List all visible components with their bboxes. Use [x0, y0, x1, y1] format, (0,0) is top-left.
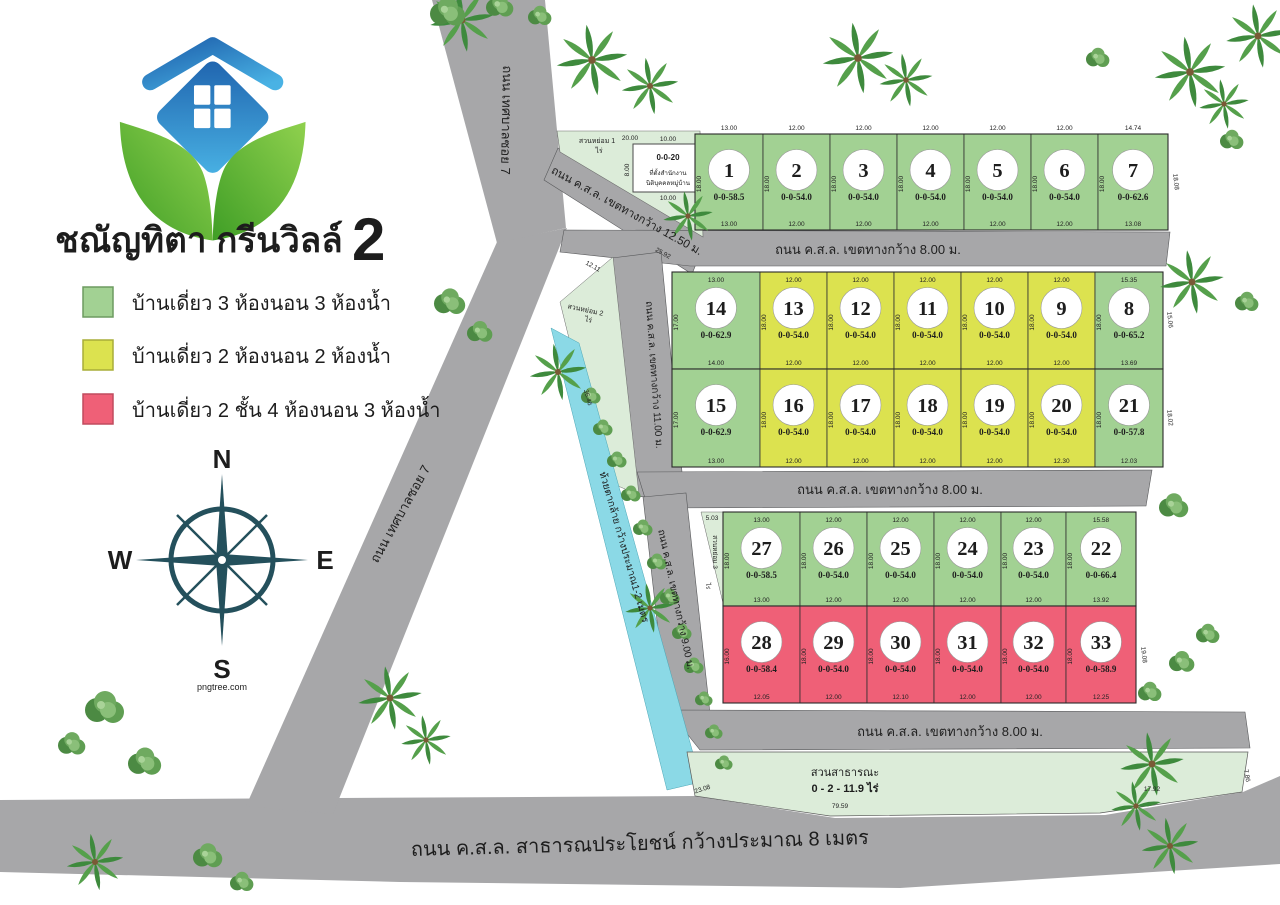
plot-area: 0-0-54.0: [915, 192, 946, 202]
plot-dim-side: 17.00: [673, 314, 680, 331]
plot-dim-bottom: 12.03: [1121, 458, 1138, 465]
plot-dim-bottom: 12.00: [959, 694, 976, 701]
plot-number: 7: [1128, 160, 1138, 182]
plot-area: 0-0-58.4: [746, 664, 777, 674]
plot-5: 50-0-54.012.0012.0018.00: [964, 125, 1031, 230]
plot-23: 230-0-54.012.0012.0018.00: [1001, 512, 1066, 606]
plot-dim-bottom: 13.00: [753, 597, 770, 604]
plot-21: 210-0-57.812.0318.00: [1095, 369, 1163, 467]
plot-8: 80-0-65.215.3513.6918.00: [1095, 272, 1163, 369]
legend-label-green: บ้านเดี่ยว 3 ห้องนอน 3 ห้องน้ำ: [132, 289, 391, 315]
plot-10: 100-0-54.012.0012.0018.00: [961, 272, 1028, 369]
plot-area: 0-0-54.0: [979, 330, 1010, 340]
plot-dim-top: 12.00: [788, 125, 805, 132]
plot-dim-bottom: 12.05: [753, 694, 770, 701]
plot-dim-top: 13.00: [721, 125, 738, 132]
plot-area: 0-0-65.2: [1114, 330, 1145, 340]
plot-number: 27: [751, 538, 772, 560]
plot-area: 0-0-54.0: [818, 664, 849, 674]
plot-dim-bottom: 12.00: [922, 221, 939, 228]
plot-dim-side: 18.00: [764, 175, 771, 192]
road8-label-3: ถนน ค.ส.ล. เขตทางกว้าง 8.00 ม.: [857, 724, 1043, 739]
plot-number: 17: [850, 395, 871, 417]
public-park-line2: 0 - 2 - 11.9 ไร่: [811, 781, 878, 795]
legend-chip-pink: [83, 394, 113, 424]
plot-dim-bottom: 12.00: [852, 458, 869, 465]
plot-number: 4: [925, 160, 935, 182]
plot-28: 280-0-58.412.0516.00: [723, 606, 800, 703]
plot-dim-bottom: 12.00: [785, 360, 802, 367]
plot-dim-top: 12.00: [989, 125, 1006, 132]
plot-number: 3: [858, 160, 868, 182]
plot-dim-side: 18.00: [828, 411, 835, 428]
plot-area: 0-0-54.0: [778, 427, 809, 437]
plot-dim-side: 18.00: [761, 411, 768, 428]
plot-17: 170-0-54.012.0018.00: [827, 369, 894, 467]
plot-dim-top: 13.00: [753, 517, 770, 524]
plot-dim-top: 12.00: [1053, 277, 1070, 284]
plot-number: 11: [918, 298, 937, 320]
plot-dim-bottom: 12.00: [825, 694, 842, 701]
plot-area: 0-0-54.0: [885, 570, 916, 580]
plot-dim-top: 12.00: [1025, 517, 1042, 524]
garden1-rai: ไร่: [594, 146, 603, 155]
office-dim-bottom: 10.00: [660, 195, 677, 202]
plot-dim-bottom: 12.00: [1056, 221, 1073, 228]
plot-number: 15: [706, 395, 727, 417]
plot-20: 200-0-54.012.3018.00: [1028, 369, 1095, 467]
plot-number: 32: [1023, 632, 1044, 654]
plot-dim-bottom: 12.00: [986, 458, 1003, 465]
plot-4: 40-0-54.012.0012.0018.00: [897, 125, 964, 230]
plot-7: 70-0-62.614.7413.0818.00: [1098, 125, 1168, 230]
site-plan-page: 0-0-20 ที่ตั้งสำนักงาน นิติบุคคลหมู่บ้าน…: [0, 0, 1280, 905]
legend-chip-green: [83, 287, 113, 317]
plot-dim-side: 18.00: [831, 175, 838, 192]
plot-dim-bottom: 12.00: [855, 221, 872, 228]
plot-area: 0-0-54.0: [1049, 192, 1080, 202]
plot-dim-side: 18.00: [868, 552, 875, 569]
plot-dim-bottom: 12.00: [785, 458, 802, 465]
plot-number: 5: [992, 160, 1002, 182]
plot-dim-side: 18.00: [965, 175, 972, 192]
plot-dim-bottom: 12.30: [1053, 458, 1070, 465]
plot-area: 0-0-62.9: [701, 427, 732, 437]
plot-dim-bottom: 12.10: [892, 694, 909, 701]
plot-area: 0-0-54.0: [912, 427, 943, 437]
plot-area: 0-0-58.9: [1086, 664, 1117, 674]
plot-number: 10: [984, 298, 1005, 320]
plot-dim-top: 12.00: [922, 125, 939, 132]
dim-park-right: 17.92: [1144, 786, 1161, 793]
plot-area: 0-0-54.0: [845, 427, 876, 437]
plot-number: 20: [1051, 395, 1072, 417]
plot-dim-side: 18.00: [1032, 175, 1039, 192]
top-road-label: ถนน เทศบาลซอย 7: [498, 65, 515, 174]
plot-24: 240-0-54.012.0012.0018.00: [934, 512, 1001, 606]
office-dim-top: 10.00: [660, 136, 677, 143]
plot-dim-bottom: 12.00: [959, 597, 976, 604]
plot-32: 320-0-54.012.0018.00: [1001, 606, 1066, 703]
plot-number: 30: [890, 632, 911, 654]
plot-dim-top: 14.74: [1125, 125, 1142, 132]
plot-area: 0-0-54.0: [912, 330, 943, 340]
plot-area: 0-0-54.0: [982, 192, 1013, 202]
plot-number: 31: [957, 632, 978, 654]
plot-number: 18: [917, 395, 938, 417]
plot-dim-bottom: 12.00: [919, 360, 936, 367]
plot-22: 220-0-66.415.5813.9218.00: [1066, 512, 1136, 606]
plot-dim-side: 18.00: [761, 314, 768, 331]
plot-11: 110-0-54.012.0012.0018.00: [894, 272, 961, 369]
plot-area: 0-0-54.0: [1046, 330, 1077, 340]
garden1-dim: 20.00: [622, 135, 639, 142]
plot-area: 0-0-54.0: [818, 570, 849, 580]
legend-label-pink: บ้านเดี่ยว 2 ชั้น 4 ห้องนอน 3 ห้องน้ำ: [132, 396, 441, 422]
plot-dim-bottom: 12.00: [1053, 360, 1070, 367]
plot-dim-side: 18.00: [895, 314, 902, 331]
plot-dim-side: 18.00: [801, 648, 808, 665]
plot-27: 270-0-58.513.0013.0018.00: [723, 512, 800, 606]
plot-33: 330-0-58.912.2518.00: [1066, 606, 1136, 703]
plot-dim-top: 12.00: [785, 277, 802, 284]
plot-dim-bottom: 13.00: [721, 221, 738, 228]
plot-area: 0-0-54.0: [1046, 427, 1077, 437]
legend: บ้านเดี่ยว 3 ห้องนอน 3 ห้องน้ำ บ้านเดี่ย…: [83, 287, 441, 424]
office-line1: ที่ตั้งสำนักงาน: [649, 168, 687, 177]
plot-area: 0-0-57.8: [1114, 427, 1145, 437]
plot-dim-bottom: 12.00: [825, 597, 842, 604]
plot-dim-side: 18.00: [1096, 411, 1103, 428]
compass-n: N: [213, 444, 232, 474]
plot-dim-top: 12.00: [855, 125, 872, 132]
plot-dim-bottom: 12.00: [788, 221, 805, 228]
plot-area: 0-0-58.5: [714, 192, 745, 202]
plot-25: 250-0-54.012.0012.0018.00: [867, 512, 934, 606]
plot-dim-top: 15.58: [1093, 517, 1110, 524]
plot-dim-bottom: 13.08: [1125, 221, 1142, 228]
plot-dim-top: 12.00: [852, 277, 869, 284]
plot-15: 150-0-62.913.0017.00: [672, 369, 760, 467]
garden3-rai: ไร่: [704, 582, 712, 590]
plot-dim-side: 18.00: [1067, 552, 1074, 569]
plot-dim-bottom: 12.00: [852, 360, 869, 367]
plot-dim-side: 16.00: [724, 648, 731, 665]
plot-dim-side: 18.00: [1029, 314, 1036, 331]
plot-dim-side: 18.00: [935, 552, 942, 569]
plot-area: 0-0-54.0: [885, 664, 916, 674]
plot-number: 25: [890, 538, 911, 560]
plot-dim-side: 18.00: [1002, 648, 1009, 665]
plot-area: 0-0-62.6: [1118, 192, 1149, 202]
plot-number: 33: [1091, 632, 1112, 654]
compass-w: W: [108, 545, 133, 575]
garden3-label: สวนหย่อม 3: [711, 535, 718, 569]
plot-14: 140-0-62.913.0014.0017.00: [672, 272, 760, 369]
legend-label-yellow: บ้านเดี่ยว 2 ห้องนอน 2 ห้องน้ำ: [132, 342, 391, 368]
plot-dim-side: 18.00: [724, 552, 731, 569]
plot-2: 20-0-54.012.0012.0018.00: [763, 125, 830, 230]
office-dim-left: 8.00: [624, 163, 631, 176]
plot-number: 16: [783, 395, 804, 417]
plot-dim-top: 12.00: [1056, 125, 1073, 132]
dim-park-bottom: 79.59: [832, 803, 849, 810]
dim-garden3: 5.03: [706, 515, 719, 522]
plot-dim-bottom: 13.69: [1121, 360, 1138, 367]
plot-dim-side: 18.00: [935, 648, 942, 665]
plot-dim-side: 18.00: [801, 552, 808, 569]
plot-dim-bottom: 12.00: [919, 458, 936, 465]
plot-area: 0-0-54.0: [952, 570, 983, 580]
page-title-number: 2: [352, 206, 385, 273]
plot-dim-side: 18.00: [1067, 648, 1074, 665]
plot-area: 0-0-54.0: [778, 330, 809, 340]
compass-s: S: [213, 654, 230, 684]
plot-13: 130-0-54.012.0012.0018.00: [760, 272, 827, 369]
office-line2: นิติบุคคลหมู่บ้าน: [646, 179, 691, 187]
plot-26: 260-0-54.012.0012.0018.00: [800, 512, 867, 606]
plot-dim-side: 18.00: [898, 175, 905, 192]
plot-dim-bottom: 12.00: [1025, 694, 1042, 701]
plot-dim-side: 18.00: [895, 411, 902, 428]
compass-e: E: [316, 545, 333, 575]
plot-dim-bottom: 12.00: [1025, 597, 1042, 604]
plot-dim-side: 18.00: [962, 411, 969, 428]
plot-number: 24: [957, 538, 978, 560]
legend-chip-yellow: [83, 340, 113, 370]
plot-31: 310-0-54.012.0018.00: [934, 606, 1001, 703]
plot-dim-top: 12.00: [892, 517, 909, 524]
plot-dim-side: 18.00: [1096, 314, 1103, 331]
plot-dim-top: 12.00: [959, 517, 976, 524]
plot-dim-side: 18.00: [1099, 175, 1106, 192]
plot-dim-side: 18.00: [868, 648, 875, 665]
public-park-line1: สวนสาธารณะ: [811, 767, 879, 779]
office-area: 0-0-20: [656, 153, 680, 162]
plot-dim-top: 13.00: [708, 277, 725, 284]
plot-number: 13: [783, 298, 804, 320]
site-plan-map: 0-0-20 ที่ตั้งสำนักงาน นิติบุคคลหมู่บ้าน…: [0, 0, 1280, 905]
plot-30: 300-0-54.012.1018.00: [867, 606, 934, 703]
plot-area: 0-0-54.0: [848, 192, 879, 202]
plot-area: 0-0-54.0: [979, 427, 1010, 437]
plot-3: 30-0-54.012.0012.0018.00: [830, 125, 897, 230]
plot-area: 0-0-54.0: [1018, 664, 1049, 674]
plot-12: 120-0-54.012.0012.0018.00: [827, 272, 894, 369]
plot-area: 0-0-62.9: [701, 330, 732, 340]
plot-number: 22: [1091, 538, 1112, 560]
plot-area: 0-0-58.5: [746, 570, 777, 580]
page-title: ชณัญทิตา กรีนวิลล์: [55, 220, 343, 261]
watermark: pngtree.com: [197, 682, 247, 692]
plot-19: 190-0-54.012.0018.00: [961, 369, 1028, 467]
plot-dim-top: 12.00: [919, 277, 936, 284]
plot-number: 8: [1124, 298, 1134, 320]
plot-dim-bottom: 12.00: [986, 360, 1003, 367]
plot-number: 23: [1023, 538, 1044, 560]
plot-dim-side: 18.00: [1029, 411, 1036, 428]
plot-dim-bottom: 13.92: [1093, 597, 1110, 604]
plot-number: 9: [1056, 298, 1066, 320]
plot-area: 0-0-66.4: [1086, 570, 1117, 580]
plot-dim-top: 12.00: [825, 517, 842, 524]
plot-number: 19: [984, 395, 1005, 417]
plot-area: 0-0-54.0: [952, 664, 983, 674]
plot-dim-side: 17.00: [673, 411, 680, 428]
plot-dim-bottom: 14.00: [708, 360, 725, 367]
plot-area: 0-0-54.0: [781, 192, 812, 202]
plot-number: 6: [1059, 160, 1069, 182]
plot-dim-bottom: 12.00: [892, 597, 909, 604]
plot-area: 0-0-54.0: [1018, 570, 1049, 580]
plot-9: 90-0-54.012.0012.0018.00: [1028, 272, 1095, 369]
plot-dim-top: 15.35: [1121, 277, 1138, 284]
plot-dim-bottom: 13.00: [708, 458, 725, 465]
plot-number: 14: [706, 298, 727, 320]
garden1-label: สวนหย่อม 1: [579, 138, 615, 145]
plot-dim-top: 12.00: [986, 277, 1003, 284]
plot-16: 160-0-54.012.0018.00: [760, 369, 827, 467]
plot-18: 180-0-54.012.0018.00: [894, 369, 961, 467]
plots-layer: 10-0-58.513.0013.0018.0020-0-54.012.0012…: [672, 125, 1168, 703]
plot-number: 26: [823, 538, 844, 560]
plot-number: 2: [791, 160, 801, 182]
plot-dim-side: 18.00: [828, 314, 835, 331]
plot-number: 28: [751, 632, 772, 654]
plot-number: 12: [850, 298, 871, 320]
plot-6: 60-0-54.012.0012.0018.00: [1031, 125, 1098, 230]
plot-number: 21: [1119, 395, 1140, 417]
plot-number: 29: [823, 632, 844, 654]
road8-label-2: ถนน ค.ส.ล. เขตทางกว้าง 8.00 ม.: [797, 482, 983, 497]
plot-area: 0-0-54.0: [845, 330, 876, 340]
plot-number: 1: [724, 160, 734, 182]
plot-dim-bottom: 12.25: [1093, 694, 1110, 701]
plot-dim-side: 18.00: [1002, 552, 1009, 569]
plot-dim-bottom: 12.00: [989, 221, 1006, 228]
road8-label-1: ถนน ค.ส.ล. เขตทางกว้าง 8.00 ม.: [775, 242, 961, 257]
plot-dim-side: 18.00: [962, 314, 969, 331]
plot-dim-side: 18.00: [696, 175, 703, 192]
plot-29: 290-0-54.012.0018.00: [800, 606, 867, 703]
